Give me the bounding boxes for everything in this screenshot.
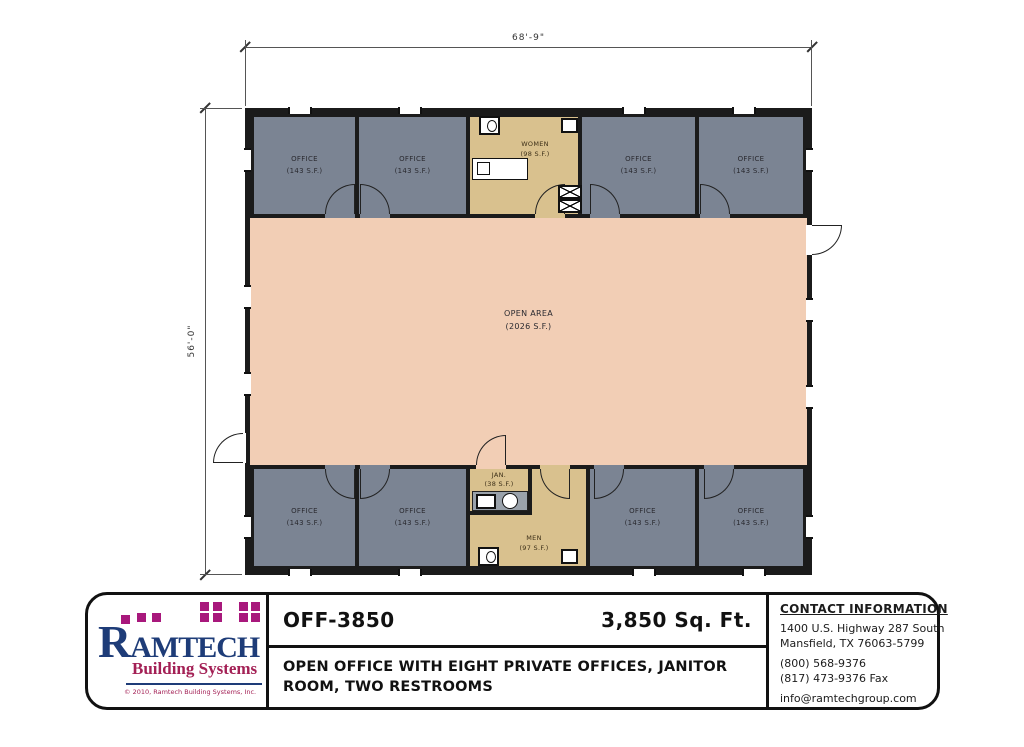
- model-number: OFF-3850: [283, 608, 395, 632]
- office-1-label: OFFICE(143 S.F.): [287, 154, 323, 176]
- sink-fixture: [561, 118, 578, 133]
- women-label: WOMEN(98 S.F.): [500, 139, 570, 160]
- door-gap: [325, 214, 355, 218]
- window: [288, 107, 312, 114]
- window: [806, 515, 813, 539]
- jan-wall: [528, 469, 532, 515]
- door-gap: [590, 214, 620, 218]
- window: [806, 298, 813, 322]
- contact-email: info@ramtechgroup.com: [780, 692, 1020, 707]
- office-7-label: OFFICE(143 S.F.): [625, 506, 661, 528]
- office-4-label: OFFICE(143 S.F.): [733, 154, 769, 176]
- model-row: OFF-3850 3,850 Sq. Ft.: [269, 595, 766, 645]
- description-row: OPEN OFFICE WITH EIGHT PRIVATE OFFICES, …: [269, 647, 766, 707]
- door-gap: [535, 214, 565, 218]
- dimension-line-top: [245, 47, 812, 48]
- logo-copyright: © 2010, Ramtech Building Systems, Inc.: [124, 688, 256, 696]
- door-gap: [700, 214, 730, 218]
- plan-description: OPEN OFFICE WITH EIGHT PRIVATE OFFICES, …: [283, 657, 752, 698]
- window: [288, 569, 312, 576]
- window: [244, 515, 251, 539]
- window: [244, 148, 251, 172]
- office-8-label: OFFICE(143 S.F.): [733, 506, 769, 528]
- ramtech-logo: RAMTECH Building Systems © 2010, Ramtech…: [96, 599, 264, 705]
- window: [622, 107, 646, 114]
- jan-wall: [470, 511, 532, 515]
- divider: [766, 595, 769, 707]
- mechanical-chase-box: [558, 185, 582, 199]
- extension-line: [200, 108, 242, 109]
- contact-address-1: 1400 U.S. Highway 287 South: [780, 622, 1020, 637]
- toilet-fixture: [478, 547, 499, 566]
- floor-plan-sheet: 68'-9" 56'-0" OFFICE(143 S.F.) OFFICE(14…: [0, 0, 1024, 747]
- square-footage: 3,850 Sq. Ft.: [601, 608, 752, 632]
- window: [244, 372, 251, 396]
- office-6-label: OFFICE(143 S.F.): [395, 506, 431, 528]
- office-3-label: OFFICE(143 S.F.): [621, 154, 657, 176]
- open-area-label: OPEN AREA(2026 S.F.): [250, 308, 807, 334]
- mop-sink-fixture: [476, 494, 496, 509]
- mechanical-chase-box: [558, 199, 582, 213]
- window: [398, 569, 422, 576]
- window: [732, 107, 756, 114]
- door-gap: [476, 465, 506, 469]
- contact-address-2: Mansfield, TX 76063-5799: [780, 637, 1020, 652]
- door-arc-jan: [476, 435, 506, 465]
- vanity-counter: [472, 158, 528, 180]
- dimension-height-label: 56'-0": [187, 301, 197, 381]
- window: [806, 148, 813, 172]
- contact-heading: CONTACT INFORMATION: [780, 601, 1020, 617]
- sink-fixture: [561, 549, 578, 564]
- door-arc-exterior-left: [213, 433, 243, 463]
- window: [398, 107, 422, 114]
- logo-tagline: Building Systems: [132, 659, 257, 679]
- window: [632, 569, 656, 576]
- extension-line: [811, 40, 812, 106]
- floor-drain: [502, 493, 518, 509]
- dimension-width-label: 68'-9": [245, 33, 812, 43]
- toilet-fixture: [479, 116, 500, 135]
- office-5-label: OFFICE(143 S.F.): [287, 506, 323, 528]
- door-gap: [360, 214, 390, 218]
- office-2-label: OFFICE(143 S.F.): [395, 154, 431, 176]
- extension-line: [200, 574, 242, 575]
- jan-counter: [472, 491, 528, 511]
- dimension-line-left: [205, 108, 206, 575]
- building-outline: OFFICE(143 S.F.) OFFICE(143 S.F.) OFFICE…: [245, 108, 812, 575]
- window: [742, 569, 766, 576]
- window: [244, 285, 251, 309]
- logo-rule: [126, 683, 262, 685]
- men-label: MEN(97 S.F.): [504, 533, 564, 554]
- contact-fax: (817) 473-9376 Fax: [780, 672, 1020, 687]
- extension-line: [245, 40, 246, 106]
- door-arc-exterior-right: [812, 225, 842, 255]
- jan-label: JAN.(38 S.F.): [470, 471, 528, 489]
- contact-phone: (800) 568-9376: [780, 657, 1020, 672]
- title-block: RAMTECH Building Systems © 2010, Ramtech…: [85, 592, 940, 710]
- contact-info: CONTACT INFORMATION 1400 U.S. Highway 28…: [780, 601, 1020, 706]
- window: [806, 385, 813, 409]
